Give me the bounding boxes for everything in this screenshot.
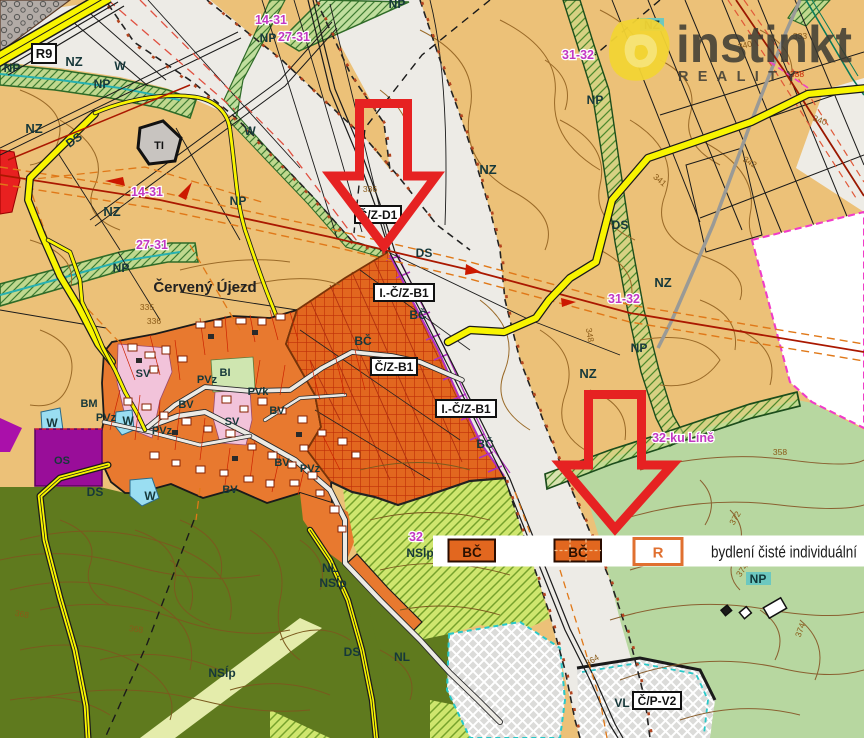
svg-text:DS: DS (87, 485, 104, 499)
svg-text:W: W (46, 416, 58, 430)
svg-text:14-31: 14-31 (255, 13, 287, 27)
svg-text:I.-Č/Z-B1: I.-Č/Z-B1 (441, 401, 491, 416)
svg-text:W: W (144, 489, 156, 503)
svg-text:NZ: NZ (654, 275, 671, 290)
svg-text:NP: NP (260, 31, 277, 45)
svg-text:NP: NP (631, 341, 648, 355)
svg-text:NZ: NZ (479, 162, 496, 177)
svg-text:SV: SV (225, 416, 240, 428)
svg-text:BV: BV (269, 405, 285, 417)
svg-text:NL: NL (394, 650, 410, 664)
svg-text:31-32: 31-32 (608, 292, 640, 306)
svg-text:NP: NP (389, 0, 406, 11)
svg-text:BV: BV (178, 399, 194, 411)
svg-text:NP: NP (750, 572, 767, 586)
svg-text:BČ: BČ (476, 436, 494, 451)
svg-text:R9: R9 (36, 46, 53, 61)
svg-text:27-31: 27-31 (278, 30, 310, 44)
svg-text:14-31: 14-31 (131, 185, 163, 199)
svg-text:NP: NP (230, 194, 247, 208)
svg-text:NP: NP (94, 77, 111, 91)
svg-text:PVz: PVz (152, 425, 173, 437)
svg-text:instinkt: instinkt (676, 16, 852, 74)
svg-text:358: 358 (773, 447, 787, 457)
svg-text:NP: NP (113, 261, 130, 275)
svg-text:TI: TI (154, 140, 164, 152)
svg-text:336: 336 (363, 184, 377, 194)
svg-text:PVz: PVz (300, 463, 321, 475)
svg-text:W: W (122, 414, 134, 428)
svg-text:DS: DS (344, 645, 361, 659)
svg-text:NP: NP (4, 61, 21, 75)
svg-text:DS: DS (612, 218, 629, 232)
svg-text:R: R (653, 545, 664, 562)
svg-text:I.-Č/Z-B1: I.-Č/Z-B1 (379, 285, 429, 300)
svg-text:NZ: NZ (103, 204, 120, 219)
svg-text:NP: NP (587, 93, 604, 107)
svg-text:W: W (244, 124, 256, 138)
svg-text:32: 32 (409, 530, 423, 544)
svg-text:DS: DS (416, 246, 433, 260)
svg-text:NSĺp: NSĺp (319, 575, 346, 590)
svg-text:NSĺp: NSĺp (208, 665, 235, 680)
svg-text:BČ: BČ (568, 545, 588, 560)
svg-text:368: 368 (128, 623, 144, 635)
svg-text:BČ: BČ (462, 545, 482, 560)
svg-text:Č/Z-B1: Č/Z-B1 (375, 359, 414, 374)
svg-text:31-32: 31-32 (562, 48, 594, 62)
svg-text:PVz: PVz (96, 412, 117, 424)
svg-text:OS: OS (54, 455, 70, 467)
svg-text:NZ: NZ (25, 121, 42, 136)
svg-text:W: W (114, 59, 126, 73)
svg-text:SV: SV (136, 368, 151, 380)
svg-text:336: 336 (147, 316, 161, 326)
svg-text:NL: NL (322, 561, 338, 575)
svg-text:27-31: 27-31 (136, 238, 168, 252)
svg-text:Červený Újezd: Červený Újezd (153, 278, 256, 296)
svg-text:NZ: NZ (65, 54, 82, 69)
svg-text:32-ku Líně: 32-ku Líně (652, 431, 714, 445)
svg-text:335: 335 (140, 302, 154, 312)
svg-text:BČ: BČ (354, 333, 372, 348)
svg-text:BV: BV (222, 484, 238, 496)
svg-text:BI: BI (220, 367, 231, 379)
svg-text:PVz: PVz (197, 374, 218, 386)
svg-text:Č/P-V2: Č/P-V2 (638, 693, 677, 708)
svg-text:bydlení čisté individuální: bydlení čisté individuální (711, 543, 857, 562)
svg-text:BM: BM (80, 398, 97, 410)
svg-text:PVk: PVk (248, 386, 270, 398)
svg-text:BČ: BČ (409, 307, 427, 322)
svg-text:NSĺp: NSĺp (406, 545, 433, 560)
svg-text:BV: BV (274, 457, 290, 469)
svg-text:NZ: NZ (579, 366, 596, 381)
svg-text:VL: VL (614, 696, 629, 710)
